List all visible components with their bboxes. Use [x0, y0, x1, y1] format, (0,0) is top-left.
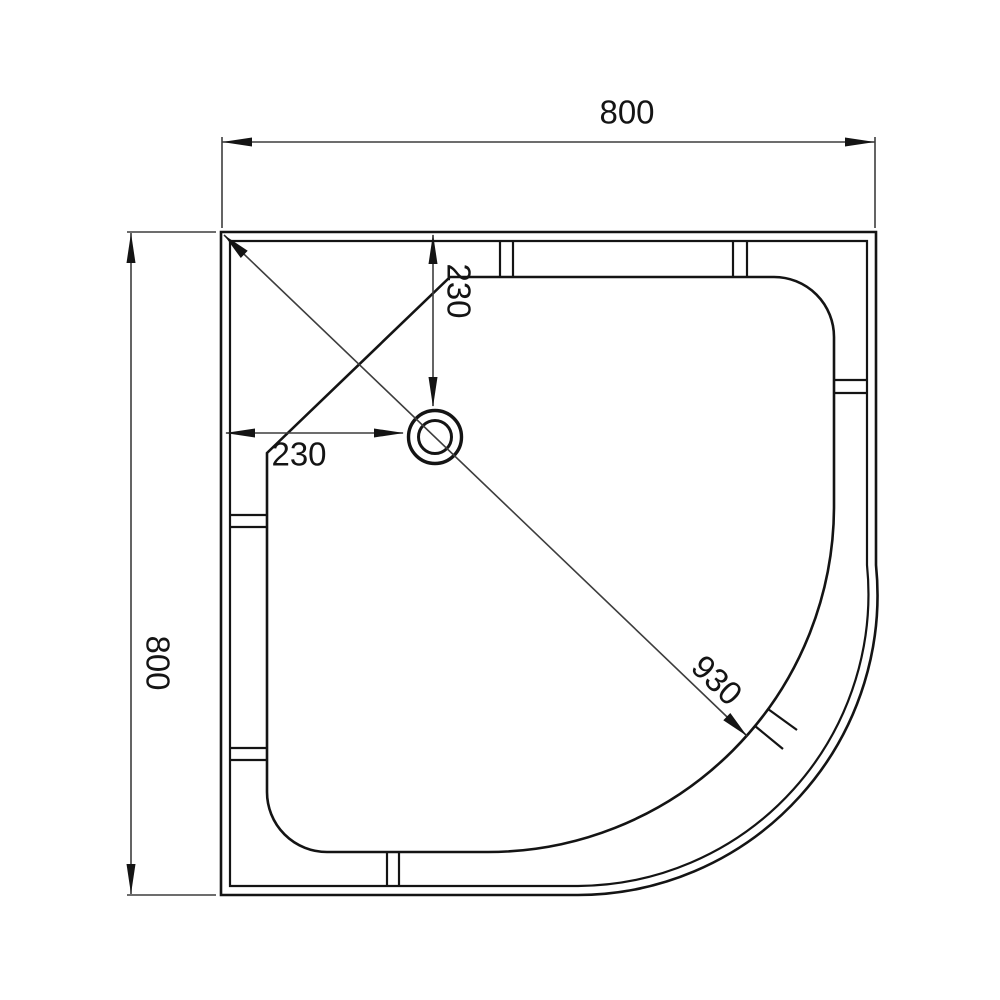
basin-outline — [267, 277, 834, 852]
rim-tick-arc — [768, 709, 797, 730]
inner-frame-line — [230, 241, 868, 886]
dimension-label-left-depth: 800 — [140, 635, 177, 690]
dimension-label-top-width: 800 — [599, 94, 654, 131]
arrowhead-down — [429, 377, 438, 407]
dimension-label-diagonal: 930 — [684, 648, 749, 713]
arrowhead-right — [374, 429, 404, 438]
tray-plan — [221, 232, 878, 895]
dimension-top-width: 800 — [222, 94, 875, 229]
arrowhead-up — [127, 233, 136, 263]
arrowhead-down — [127, 864, 136, 894]
dimension-line — [224, 235, 747, 736]
arrowhead-left — [222, 138, 252, 147]
dimension-diagonal: 930 — [224, 235, 750, 736]
arrowhead-up — [429, 234, 438, 264]
rim-tick-marks — [230, 242, 866, 886]
dimension-label-drain-from-left: 230 — [271, 436, 326, 473]
dimension-drain-from-left: 230 — [225, 429, 404, 473]
dimension-label-drain-from-top: 230 — [441, 263, 478, 318]
rim-tick-arc — [755, 726, 783, 749]
outer-frame-outline — [221, 232, 878, 895]
dimension-drain-from-top: 230 — [429, 234, 478, 407]
arrowhead-right — [845, 138, 875, 147]
drawing-canvas: 800 800 230 230 — [0, 0, 1000, 1000]
shower-tray-technical-drawing: 800 800 230 230 — [0, 0, 1000, 1000]
dimension-left-depth: 800 — [127, 232, 217, 895]
